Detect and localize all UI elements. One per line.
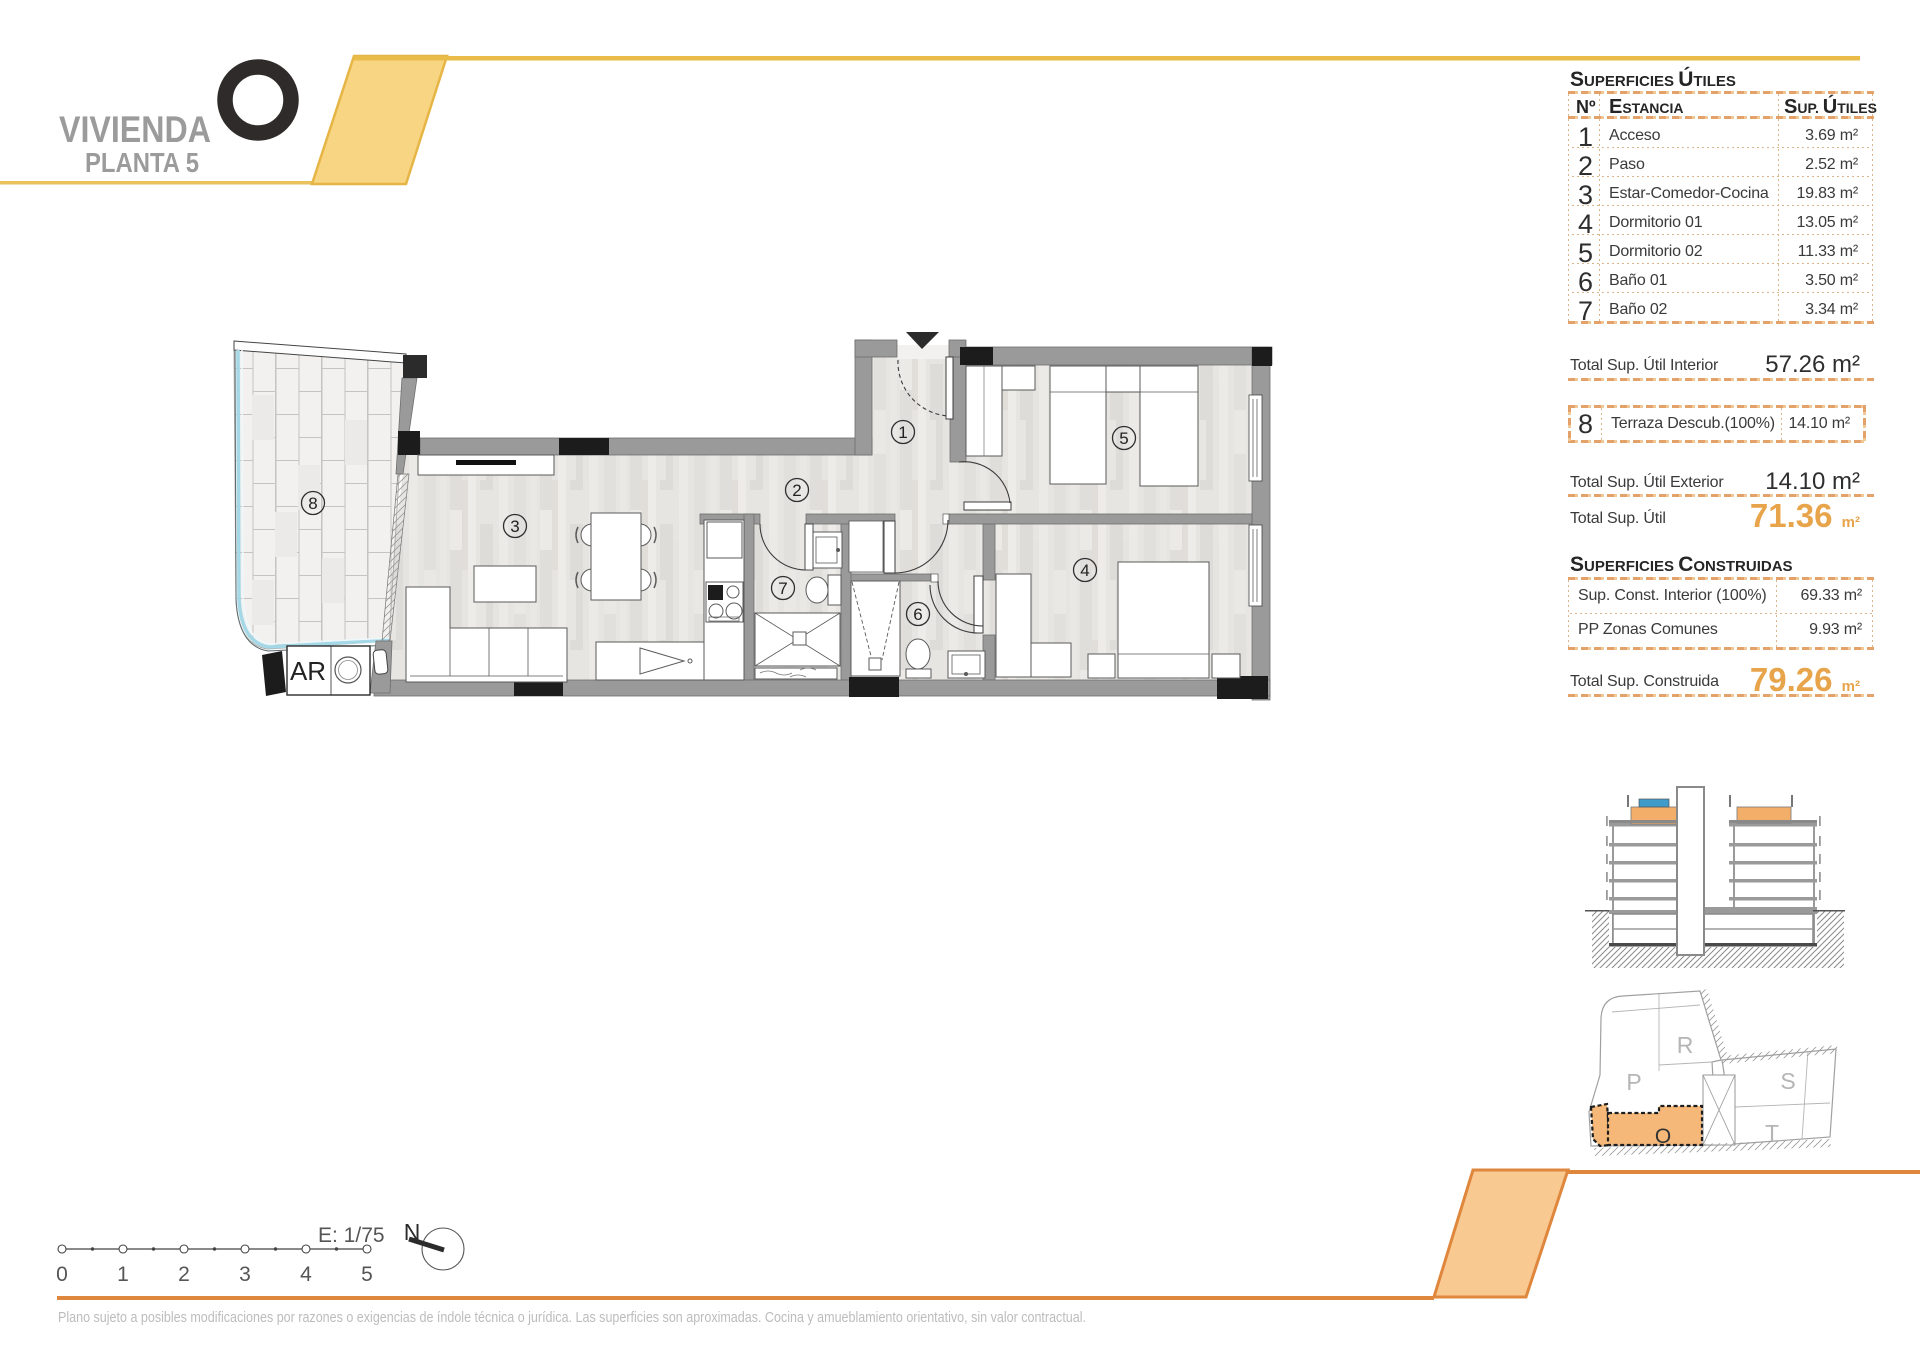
svg-text:4: 4 xyxy=(1080,561,1089,580)
svg-text:VIVIENDA: VIVIENDA xyxy=(59,109,211,150)
svg-text:3: 3 xyxy=(239,1263,251,1286)
svg-text:1: 1 xyxy=(898,423,907,442)
svg-text:4: 4 xyxy=(300,1263,312,1286)
svg-text:T: T xyxy=(1765,1120,1779,1146)
svg-text:2: 2 xyxy=(178,1263,190,1286)
svg-text:8: 8 xyxy=(308,494,317,513)
svg-text:S: S xyxy=(1780,1068,1795,1094)
svg-text:E: 1/75: E: 1/75 xyxy=(318,1224,385,1247)
svg-text:7: 7 xyxy=(778,579,787,598)
svg-text:O: O xyxy=(1655,1125,1671,1148)
svg-text:3: 3 xyxy=(510,517,519,536)
svg-text:1: 1 xyxy=(117,1263,129,1286)
svg-text:5: 5 xyxy=(361,1263,373,1286)
svg-text:PLANTA 5: PLANTA 5 xyxy=(85,147,199,178)
svg-text:AR: AR xyxy=(290,656,326,686)
svg-text:2: 2 xyxy=(792,481,801,500)
svg-text:Plano sujeto a posibles modifi: Plano sujeto a posibles modificaciones p… xyxy=(58,1310,1086,1326)
svg-text:P: P xyxy=(1626,1069,1641,1095)
svg-text:0: 0 xyxy=(56,1263,68,1286)
svg-text:R: R xyxy=(1677,1032,1694,1058)
svg-text:5: 5 xyxy=(1119,429,1128,448)
svg-text:6: 6 xyxy=(913,605,922,624)
